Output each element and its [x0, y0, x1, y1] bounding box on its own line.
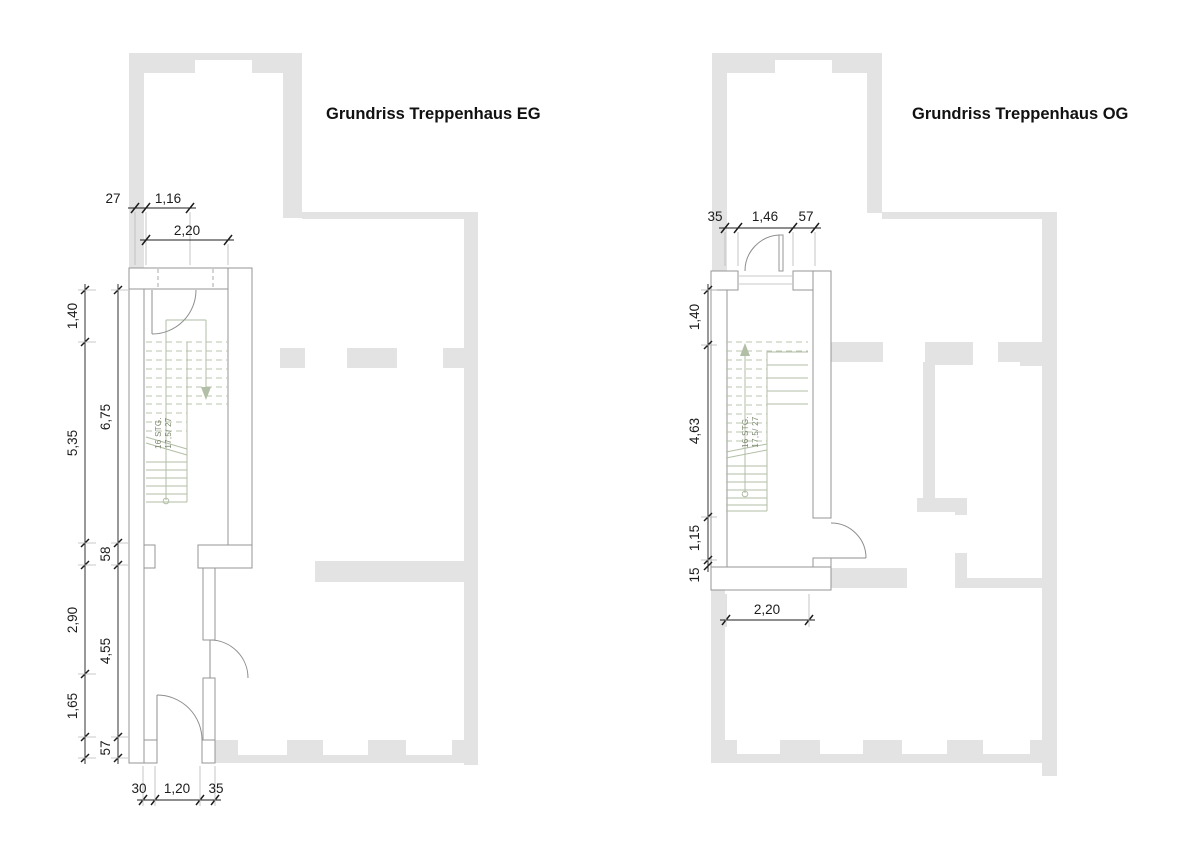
og-stair-note-line2: 17,5/ 27 — [751, 416, 760, 448]
og-dim-room-width: 2,20 — [754, 602, 780, 617]
eg-dim-stair-total: 6,75 — [98, 404, 113, 430]
eg-corridor-side-door — [210, 640, 248, 678]
og-existing-walls — [711, 53, 1057, 776]
eg-title: Grundriss Treppenhaus EG — [326, 105, 541, 123]
og-dim-top-door: 1,46 — [752, 209, 778, 224]
og-side-door — [831, 523, 866, 558]
eg-dim-upper-landing: 1,40 — [65, 303, 80, 329]
floorplan-page: 16 STG. 17,5/ 27 — [0, 0, 1200, 848]
eg-dim-top-width: 2,20 — [174, 223, 200, 238]
og-dim-top-left-wall: 35 — [707, 209, 722, 224]
eg-upper-landing-door — [152, 290, 196, 334]
og-dim-bottom-wall: 15 — [687, 567, 702, 582]
og-dim-stair-run: 4,63 — [687, 418, 702, 444]
og-title: Grundriss Treppenhaus OG — [912, 105, 1128, 123]
og-dim-upper-landing: 1,40 — [687, 304, 702, 330]
og-dim-lower-landing: 1,15 — [687, 525, 702, 551]
og-plan: 16 STG. 17,5/ 27 35 — [687, 53, 1128, 776]
eg-dim-entry: 1,65 — [65, 693, 80, 719]
eg-existing-walls — [129, 53, 478, 765]
og-stair-note-line1: 16 STG. — [741, 416, 750, 448]
eg-stairs: 16 STG. 17,5/ 27 — [146, 320, 228, 504]
og-top-door — [745, 235, 783, 271]
og-stairwell-walls — [711, 271, 831, 590]
eg-dim-stair-run: 5,35 — [65, 430, 80, 456]
eg-dim-entry-left-wall: 30 — [131, 781, 146, 796]
eg-dim-corridor: 2,90 — [65, 607, 80, 633]
floorplan-canvas: 16 STG. 17,5/ 27 — [0, 0, 1200, 848]
eg-dim-bottom-wall: 57 — [98, 740, 113, 755]
eg-dim-top-opening: 1,16 — [155, 191, 181, 206]
eg-dim-wall-offset: 27 — [105, 191, 120, 206]
eg-dim-entry-right-wall: 35 — [208, 781, 223, 796]
eg-plan: 16 STG. 17,5/ 27 — [65, 53, 541, 806]
eg-stair-note-line2: 17,5/ 27 — [164, 417, 173, 449]
eg-stair-note-line1: 16 STG. — [154, 417, 163, 449]
og-stairs: 16 STG. 17,5/ 27 — [726, 342, 808, 511]
eg-entrance-door — [157, 695, 202, 740]
eg-dim-entry-door: 1,20 — [164, 781, 190, 796]
eg-dim-corridor-total: 4,55 — [98, 638, 113, 664]
og-dim-top-right-wall: 57 — [798, 209, 813, 224]
eg-dim-mid-wall: 58 — [98, 546, 113, 561]
